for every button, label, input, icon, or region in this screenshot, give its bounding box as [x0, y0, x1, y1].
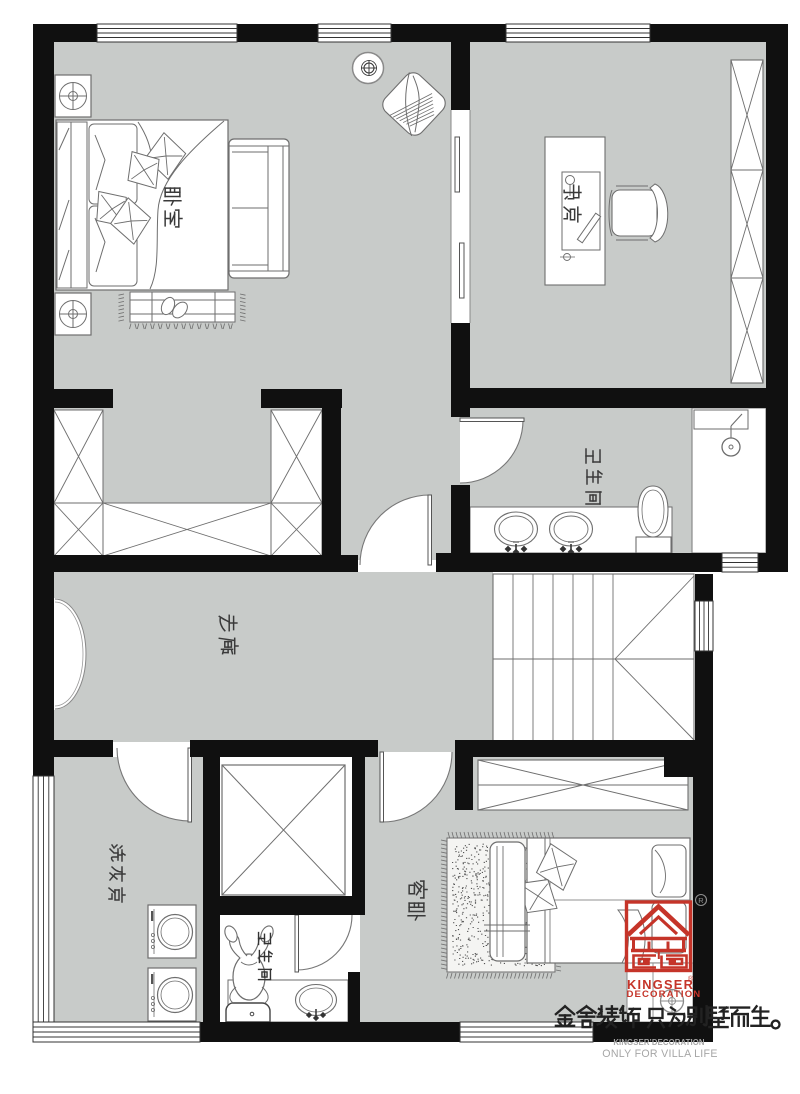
svg-text:®: ® — [688, 975, 694, 983]
svg-text:R: R — [698, 896, 704, 905]
svg-text:KINGSER’DECORATION: KINGSER’DECORATION — [613, 1038, 705, 1047]
svg-text:ONLY FOR VILLA LIFE: ONLY FOR VILLA LIFE — [602, 1048, 717, 1060]
svg-text:DECORATION: DECORATION — [627, 989, 702, 1000]
